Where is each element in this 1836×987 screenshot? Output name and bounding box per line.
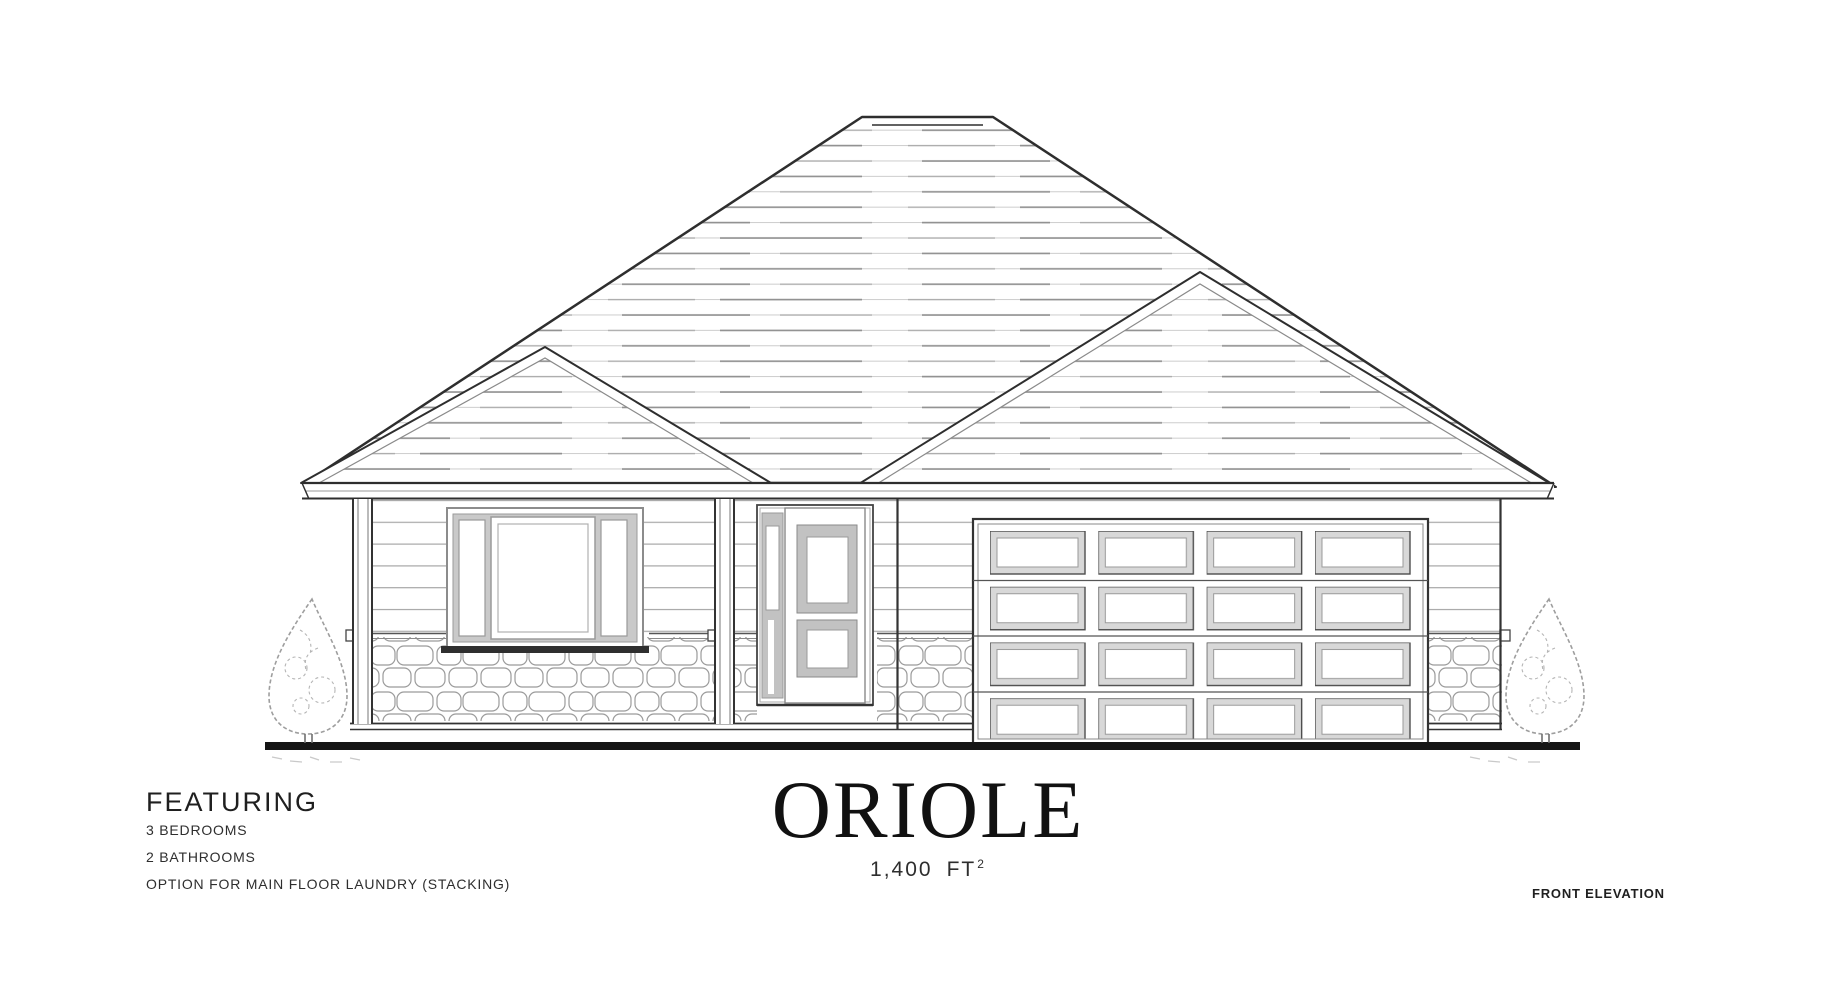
right-tree [1506,599,1584,743]
left-tree [269,599,347,743]
featuring-heading: FEATURING [146,787,510,817]
plan-area-unit: FT [947,858,977,881]
featuring-item-bedrooms: 3 BEDROOMS [146,817,510,844]
porch-post-left [352,499,373,724]
window-sill [441,646,649,653]
featuring-item-laundry-option: OPTION FOR MAIN FLOOR LAUNDRY (STACKING) [146,871,510,898]
featuring-item-bathrooms: 2 BATHROOMS [146,844,510,871]
featuring-notes: FEATURING 3 BEDROOMS 2 BATHROOMS OPTION … [146,787,510,898]
door-slab [785,508,865,703]
front-door [757,505,873,705]
front-window [441,508,649,653]
grass-ticks [272,757,1540,762]
title-block: ORIOLE 1,400FT2 [728,769,1128,882]
plan-area: 1,400FT2 [728,857,1128,882]
plan-area-superscript: 2 [977,857,986,871]
plan-area-value: 1,400 [870,858,933,881]
drawing-label: FRONT ELEVATION [1532,886,1665,901]
ground-line [265,742,1580,750]
door-sidelight [762,513,783,698]
plan-name: ORIOLE [728,769,1128,851]
fascia-band [302,482,1554,499]
front-elevation-sheet: FEATURING 3 BEDROOMS 2 BATHROOMS OPTION … [0,0,1836,987]
porch-post-center [714,499,735,724]
garage-door [973,519,1428,744]
